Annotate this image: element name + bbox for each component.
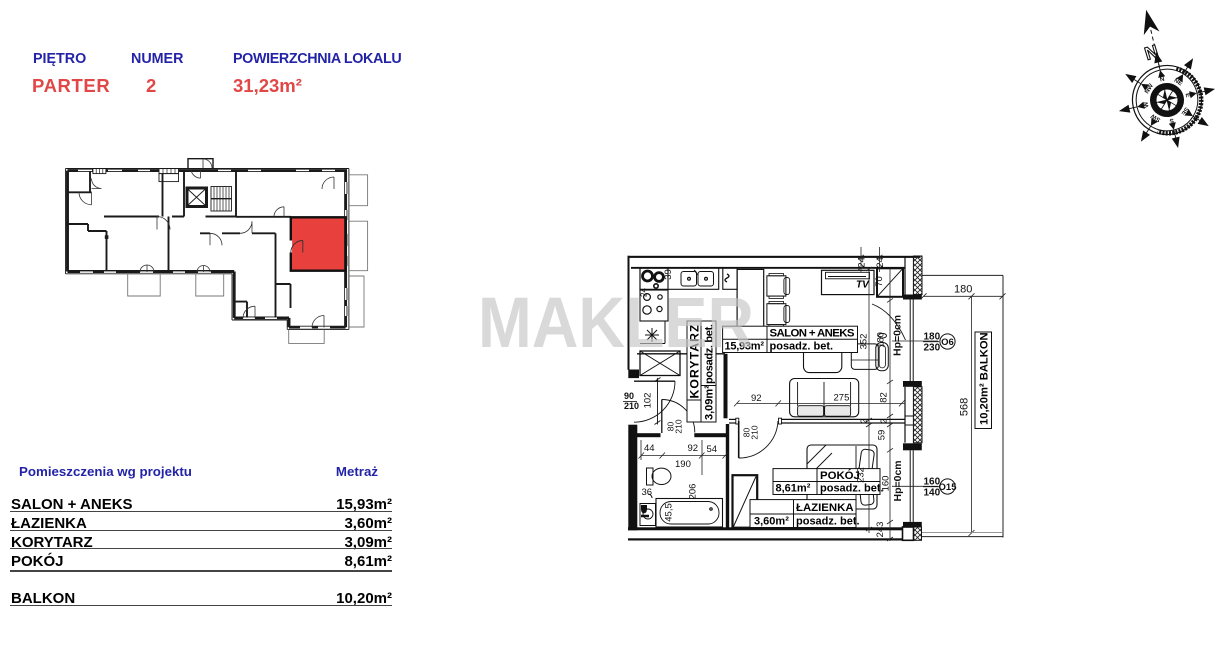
svg-text:E: E — [1184, 92, 1192, 98]
svg-text:N: N — [1159, 76, 1165, 84]
svg-text:S: S — [1169, 117, 1175, 125]
svg-text:W: W — [1142, 101, 1150, 108]
